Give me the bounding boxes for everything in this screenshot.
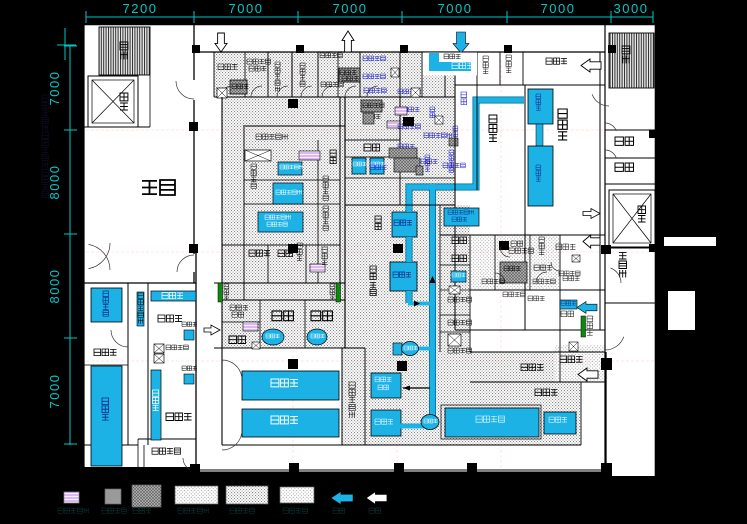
svg-text:7000: 7000 <box>438 1 473 16</box>
svg-text:7000: 7000 <box>47 374 62 409</box>
svg-text:8000: 8000 <box>47 269 62 304</box>
svg-text:8000: 8000 <box>47 165 62 200</box>
svg-text:7000: 7000 <box>229 1 264 16</box>
svg-text:7000: 7000 <box>541 1 576 16</box>
svg-text:7000: 7000 <box>333 1 368 16</box>
svg-text:7000: 7000 <box>47 71 62 106</box>
svg-text:3000: 3000 <box>614 1 649 16</box>
svg-text:7200: 7200 <box>123 1 158 16</box>
